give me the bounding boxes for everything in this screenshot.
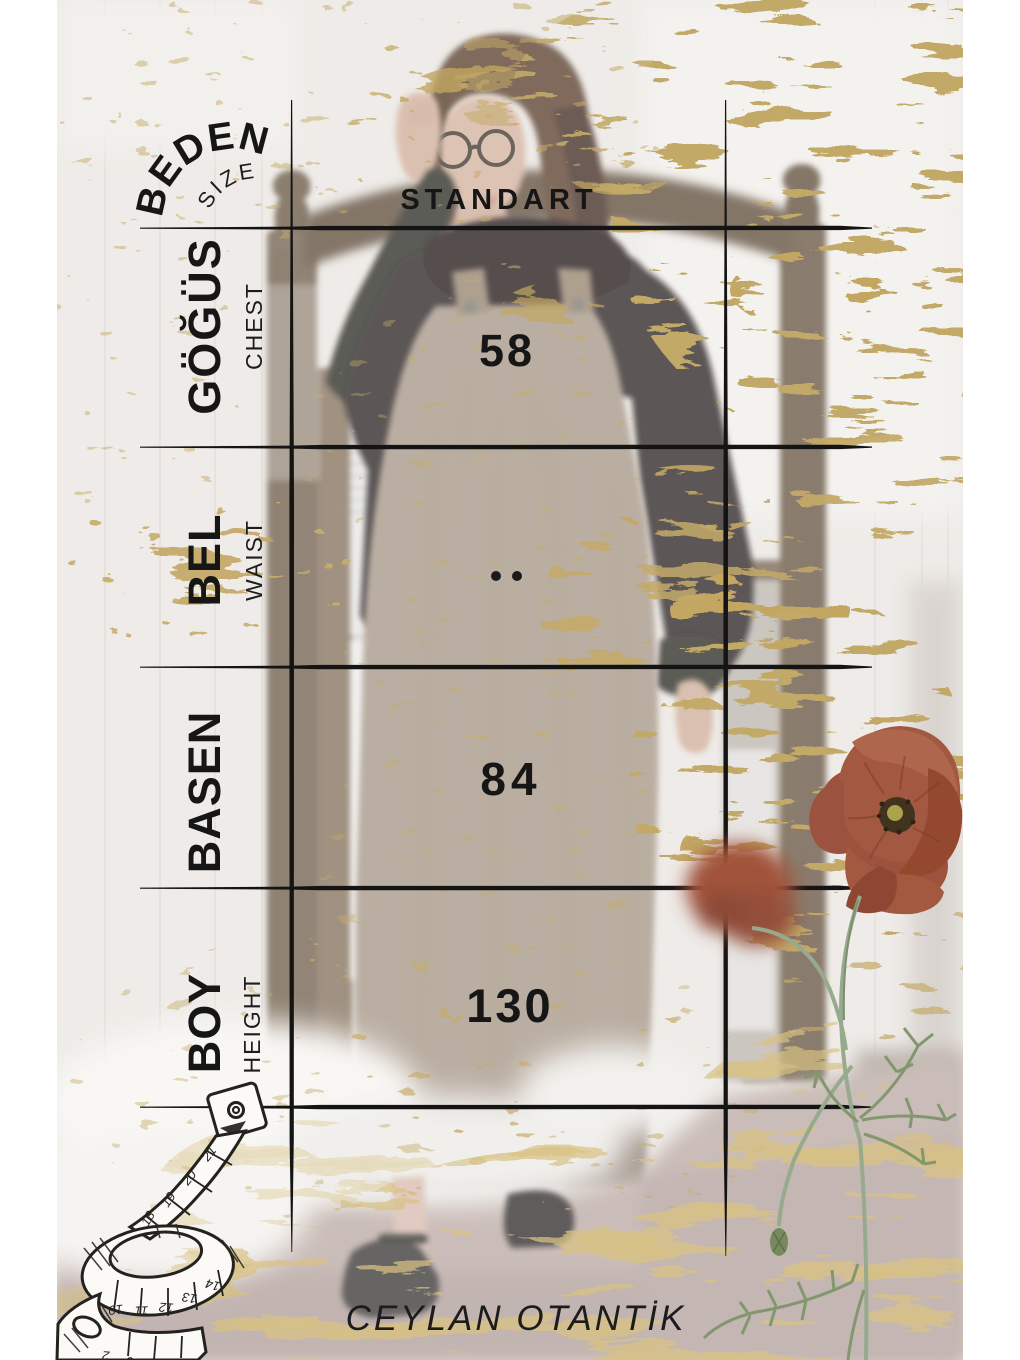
svg-text:4: 4 xyxy=(152,1356,160,1360)
svg-text:HEIGHT: HEIGHT xyxy=(239,975,265,1074)
svg-text:12: 12 xyxy=(158,1300,174,1316)
svg-text:CEYLAN OTANTİK: CEYLAN OTANTİK xyxy=(346,1299,687,1338)
svg-text:84: 84 xyxy=(480,753,541,805)
svg-text:10: 10 xyxy=(107,1302,124,1319)
svg-text:WAIST: WAIST xyxy=(241,519,267,601)
svg-text:BASEN: BASEN xyxy=(179,711,230,874)
svg-text:58: 58 xyxy=(479,325,535,376)
svg-text:BEL: BEL xyxy=(179,514,230,607)
svg-text:BOY: BOY xyxy=(179,973,230,1074)
svg-text:CHEST: CHEST xyxy=(241,282,267,370)
svg-text:STANDART: STANDART xyxy=(400,184,597,216)
svg-text:11: 11 xyxy=(135,1303,149,1318)
svg-text:130: 130 xyxy=(466,979,553,1032)
svg-text:GÖĞÜS: GÖĞÜS xyxy=(179,237,230,415)
